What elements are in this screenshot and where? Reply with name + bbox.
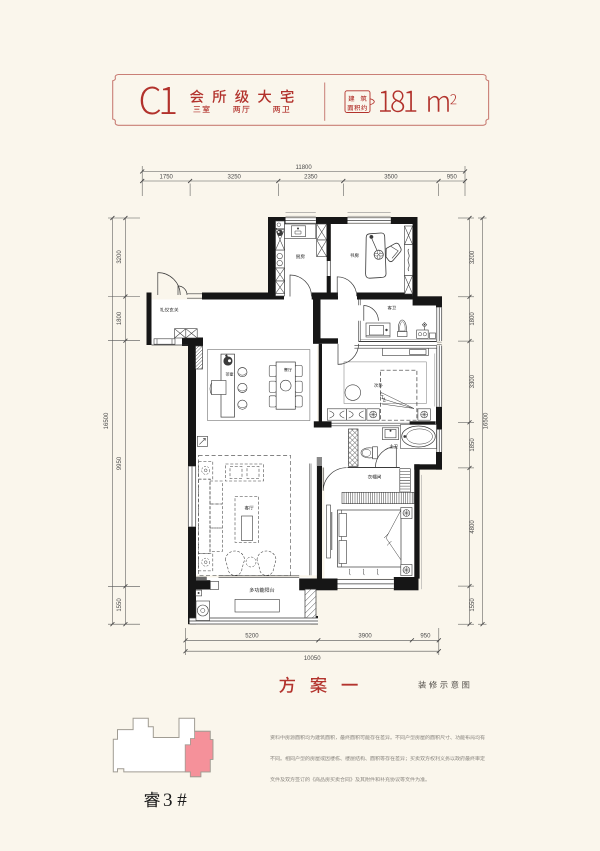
svg-text:5200: 5200: [245, 634, 259, 640]
svg-text:950: 950: [447, 175, 458, 181]
svg-text:1750: 1750: [160, 175, 174, 181]
svg-text:950: 950: [420, 634, 431, 640]
svg-text:3250: 3250: [228, 175, 242, 181]
svg-text:3200: 3200: [470, 250, 476, 264]
svg-text:16500: 16500: [104, 412, 110, 429]
svg-text:3 #: 3 #: [163, 790, 187, 811]
svg-text:3300: 3300: [470, 374, 476, 388]
svg-text:16500: 16500: [484, 412, 490, 429]
svg-text:1550: 1550: [117, 598, 123, 612]
svg-text:3900: 3900: [358, 634, 372, 640]
svg-text:3200: 3200: [117, 250, 123, 264]
svg-text:3500: 3500: [384, 175, 398, 181]
svg-text:11800: 11800: [295, 165, 312, 171]
svg-text:2350: 2350: [304, 175, 318, 181]
svg-text:10050: 10050: [304, 656, 321, 662]
svg-text:1800: 1800: [470, 312, 476, 326]
svg-text:4800: 4800: [470, 520, 476, 534]
svg-text:1850: 1850: [470, 438, 476, 452]
svg-text:1800: 1800: [117, 311, 123, 325]
svg-text:1550: 1550: [470, 598, 476, 612]
svg-text:9950: 9950: [117, 456, 123, 470]
